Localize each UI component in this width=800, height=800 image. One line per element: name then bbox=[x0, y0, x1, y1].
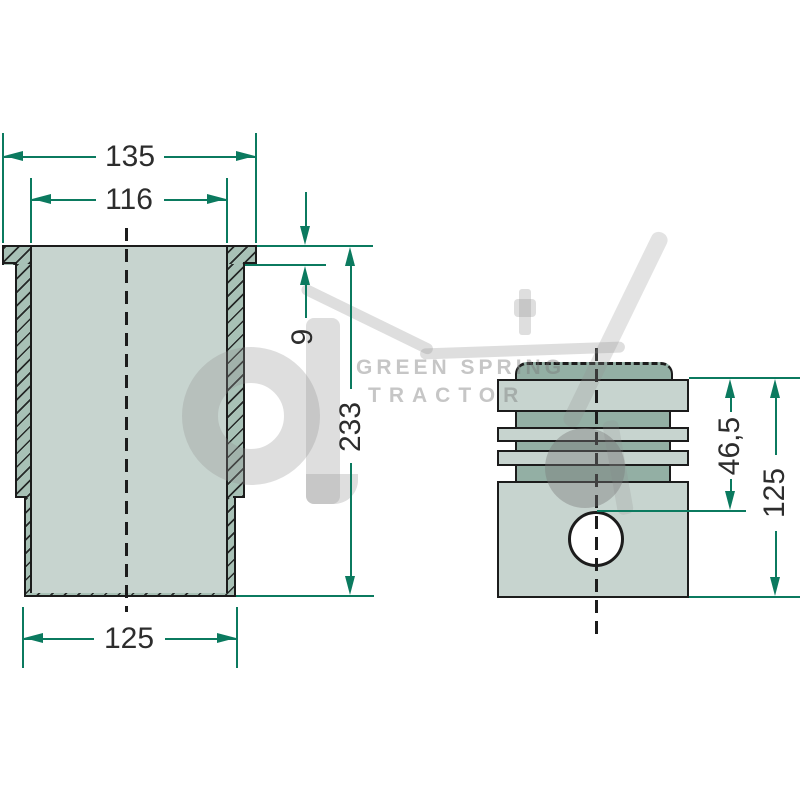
dim-135-label: 135 bbox=[95, 142, 165, 172]
dim-9-label: 9 bbox=[283, 317, 323, 357]
piston-bottom-ref-line bbox=[689, 596, 800, 598]
piston-top-ref-line bbox=[689, 377, 800, 379]
piston-pin-ref-line bbox=[597, 510, 746, 512]
watermark-letter-a-bowl bbox=[182, 347, 320, 485]
watermark-tractor-muffler bbox=[514, 299, 536, 317]
watermark-tractor-rear-wheel bbox=[545, 428, 625, 508]
dim-116-ext-right bbox=[226, 178, 228, 243]
liner-centerline bbox=[125, 228, 128, 612]
dim-125l-ext-right bbox=[236, 607, 238, 668]
dim-135-ext-left bbox=[2, 133, 4, 243]
dim-125l-label: 125 bbox=[93, 624, 165, 654]
dim-465-arrow-down-icon bbox=[725, 491, 735, 510]
dim-116-ext-left bbox=[30, 178, 32, 243]
dim-125l-arrow-right-icon bbox=[217, 633, 236, 643]
dim-233-line-lower bbox=[350, 463, 352, 577]
dim-135-ext-right bbox=[255, 133, 257, 243]
dim-465-tail-top bbox=[730, 396, 732, 412]
dim-125p-arrow-down-icon bbox=[770, 577, 780, 596]
dim-9-ref-line-top bbox=[257, 245, 373, 247]
watermark-text-line2: TRACTOR bbox=[368, 385, 526, 406]
dim-9-tail-bottom bbox=[305, 284, 307, 318]
technical-drawing-canvas: GREEN SPRING TRACTOR 135 116 9 233 125 4… bbox=[0, 0, 800, 800]
dim-135-arrow-right-icon bbox=[236, 151, 255, 161]
dim-125p-line-lower bbox=[775, 531, 777, 579]
dim-233-label: 233 bbox=[321, 397, 381, 457]
dim-125p-label: 125 bbox=[735, 463, 800, 523]
watermark-text-line1: GREEN SPRING bbox=[356, 357, 565, 378]
dim-233-ref-line-bottom bbox=[236, 595, 374, 597]
dim-233-line-upper bbox=[350, 264, 352, 389]
dim-125l-arrow-left-icon bbox=[24, 633, 43, 643]
dim-135-arrow-left-icon bbox=[4, 151, 23, 161]
dim-233-arrow-down-icon bbox=[345, 576, 355, 595]
dim-9-tail-top bbox=[305, 192, 307, 227]
dim-9-arrow-up-icon bbox=[300, 266, 310, 285]
dim-9-ref-line-bottom bbox=[245, 264, 326, 266]
dim-125p-line-upper bbox=[775, 396, 777, 455]
dim-116-arrow-right-icon bbox=[207, 194, 226, 204]
dim-116-arrow-left-icon bbox=[32, 194, 51, 204]
dim-116-label: 116 bbox=[94, 185, 164, 215]
dim-9-arrow-down-icon bbox=[300, 226, 310, 245]
